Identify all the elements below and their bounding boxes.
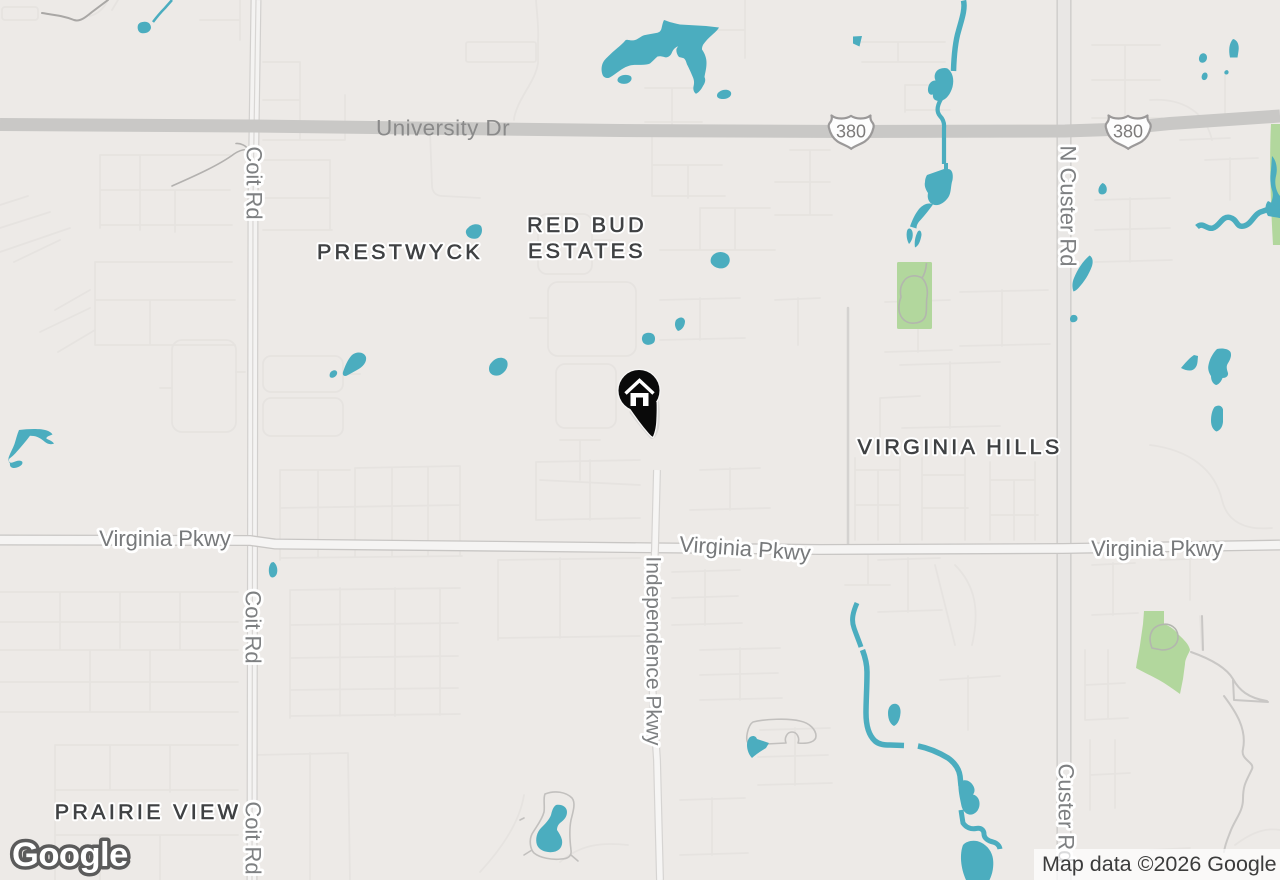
svg-text:Virginia Pkwy: Virginia Pkwy [1091,536,1223,561]
svg-text:Google: Google [12,836,128,874]
svg-text:N Custer Rd: N Custer Rd [1056,145,1081,266]
svg-text:380: 380 [1113,122,1143,142]
svg-text:Coit Rd: Coit Rd [242,146,267,219]
svg-text:Custer Rd: Custer Rd [1054,763,1079,862]
svg-text:Independence Pkwy: Independence Pkwy [642,556,665,746]
svg-text:380: 380 [836,122,866,142]
svg-text:Map data ©2026 Google: Map data ©2026 Google [1042,852,1277,876]
svg-text:Virginia Pkwy: Virginia Pkwy [99,526,231,551]
svg-text:Coit Rd: Coit Rd [241,590,266,663]
svg-text:PRAIRIE VIEW: PRAIRIE VIEW [55,800,242,824]
svg-text:ESTATES: ESTATES [528,239,646,263]
svg-text:University Dr: University Dr [376,116,510,141]
svg-text:VIRGINIA HILLS: VIRGINIA HILLS [857,435,1062,459]
svg-text:Coit Rd: Coit Rd [241,801,266,874]
svg-text:RED BUD: RED BUD [527,213,647,237]
svg-text:PRESTWYCK: PRESTWYCK [317,240,483,264]
